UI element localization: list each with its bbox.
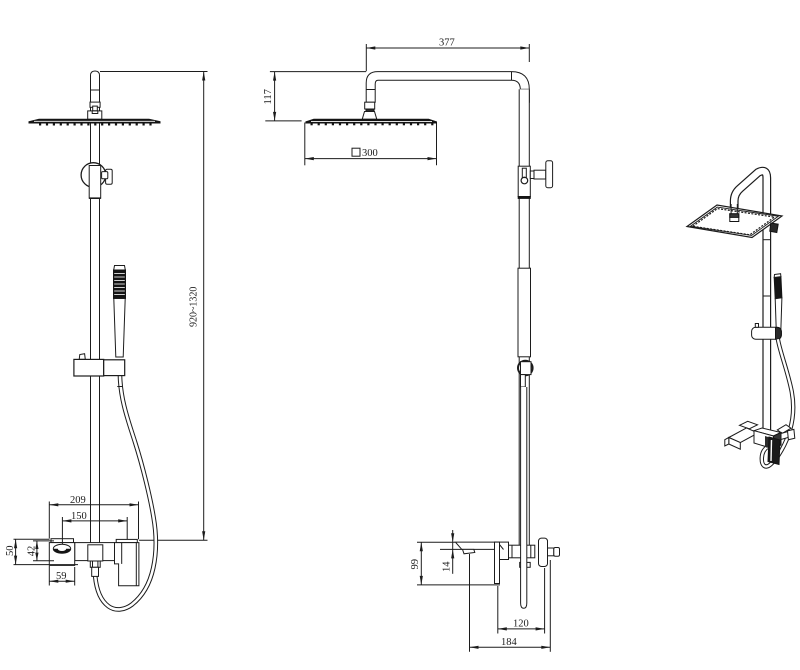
svg-text:184: 184 xyxy=(501,637,518,648)
svg-text:50: 50 xyxy=(5,546,16,557)
svg-text:920~1320: 920~1320 xyxy=(189,287,200,327)
svg-text:117: 117 xyxy=(263,89,274,104)
svg-text:377: 377 xyxy=(439,38,455,49)
svg-text:42: 42 xyxy=(26,546,37,557)
svg-text:14: 14 xyxy=(442,561,453,572)
svg-text:150: 150 xyxy=(71,511,87,522)
svg-text:120: 120 xyxy=(513,618,529,629)
svg-text:300: 300 xyxy=(362,148,378,159)
svg-text:99: 99 xyxy=(410,559,421,570)
svg-text:59: 59 xyxy=(56,571,67,582)
svg-text:209: 209 xyxy=(70,495,86,506)
